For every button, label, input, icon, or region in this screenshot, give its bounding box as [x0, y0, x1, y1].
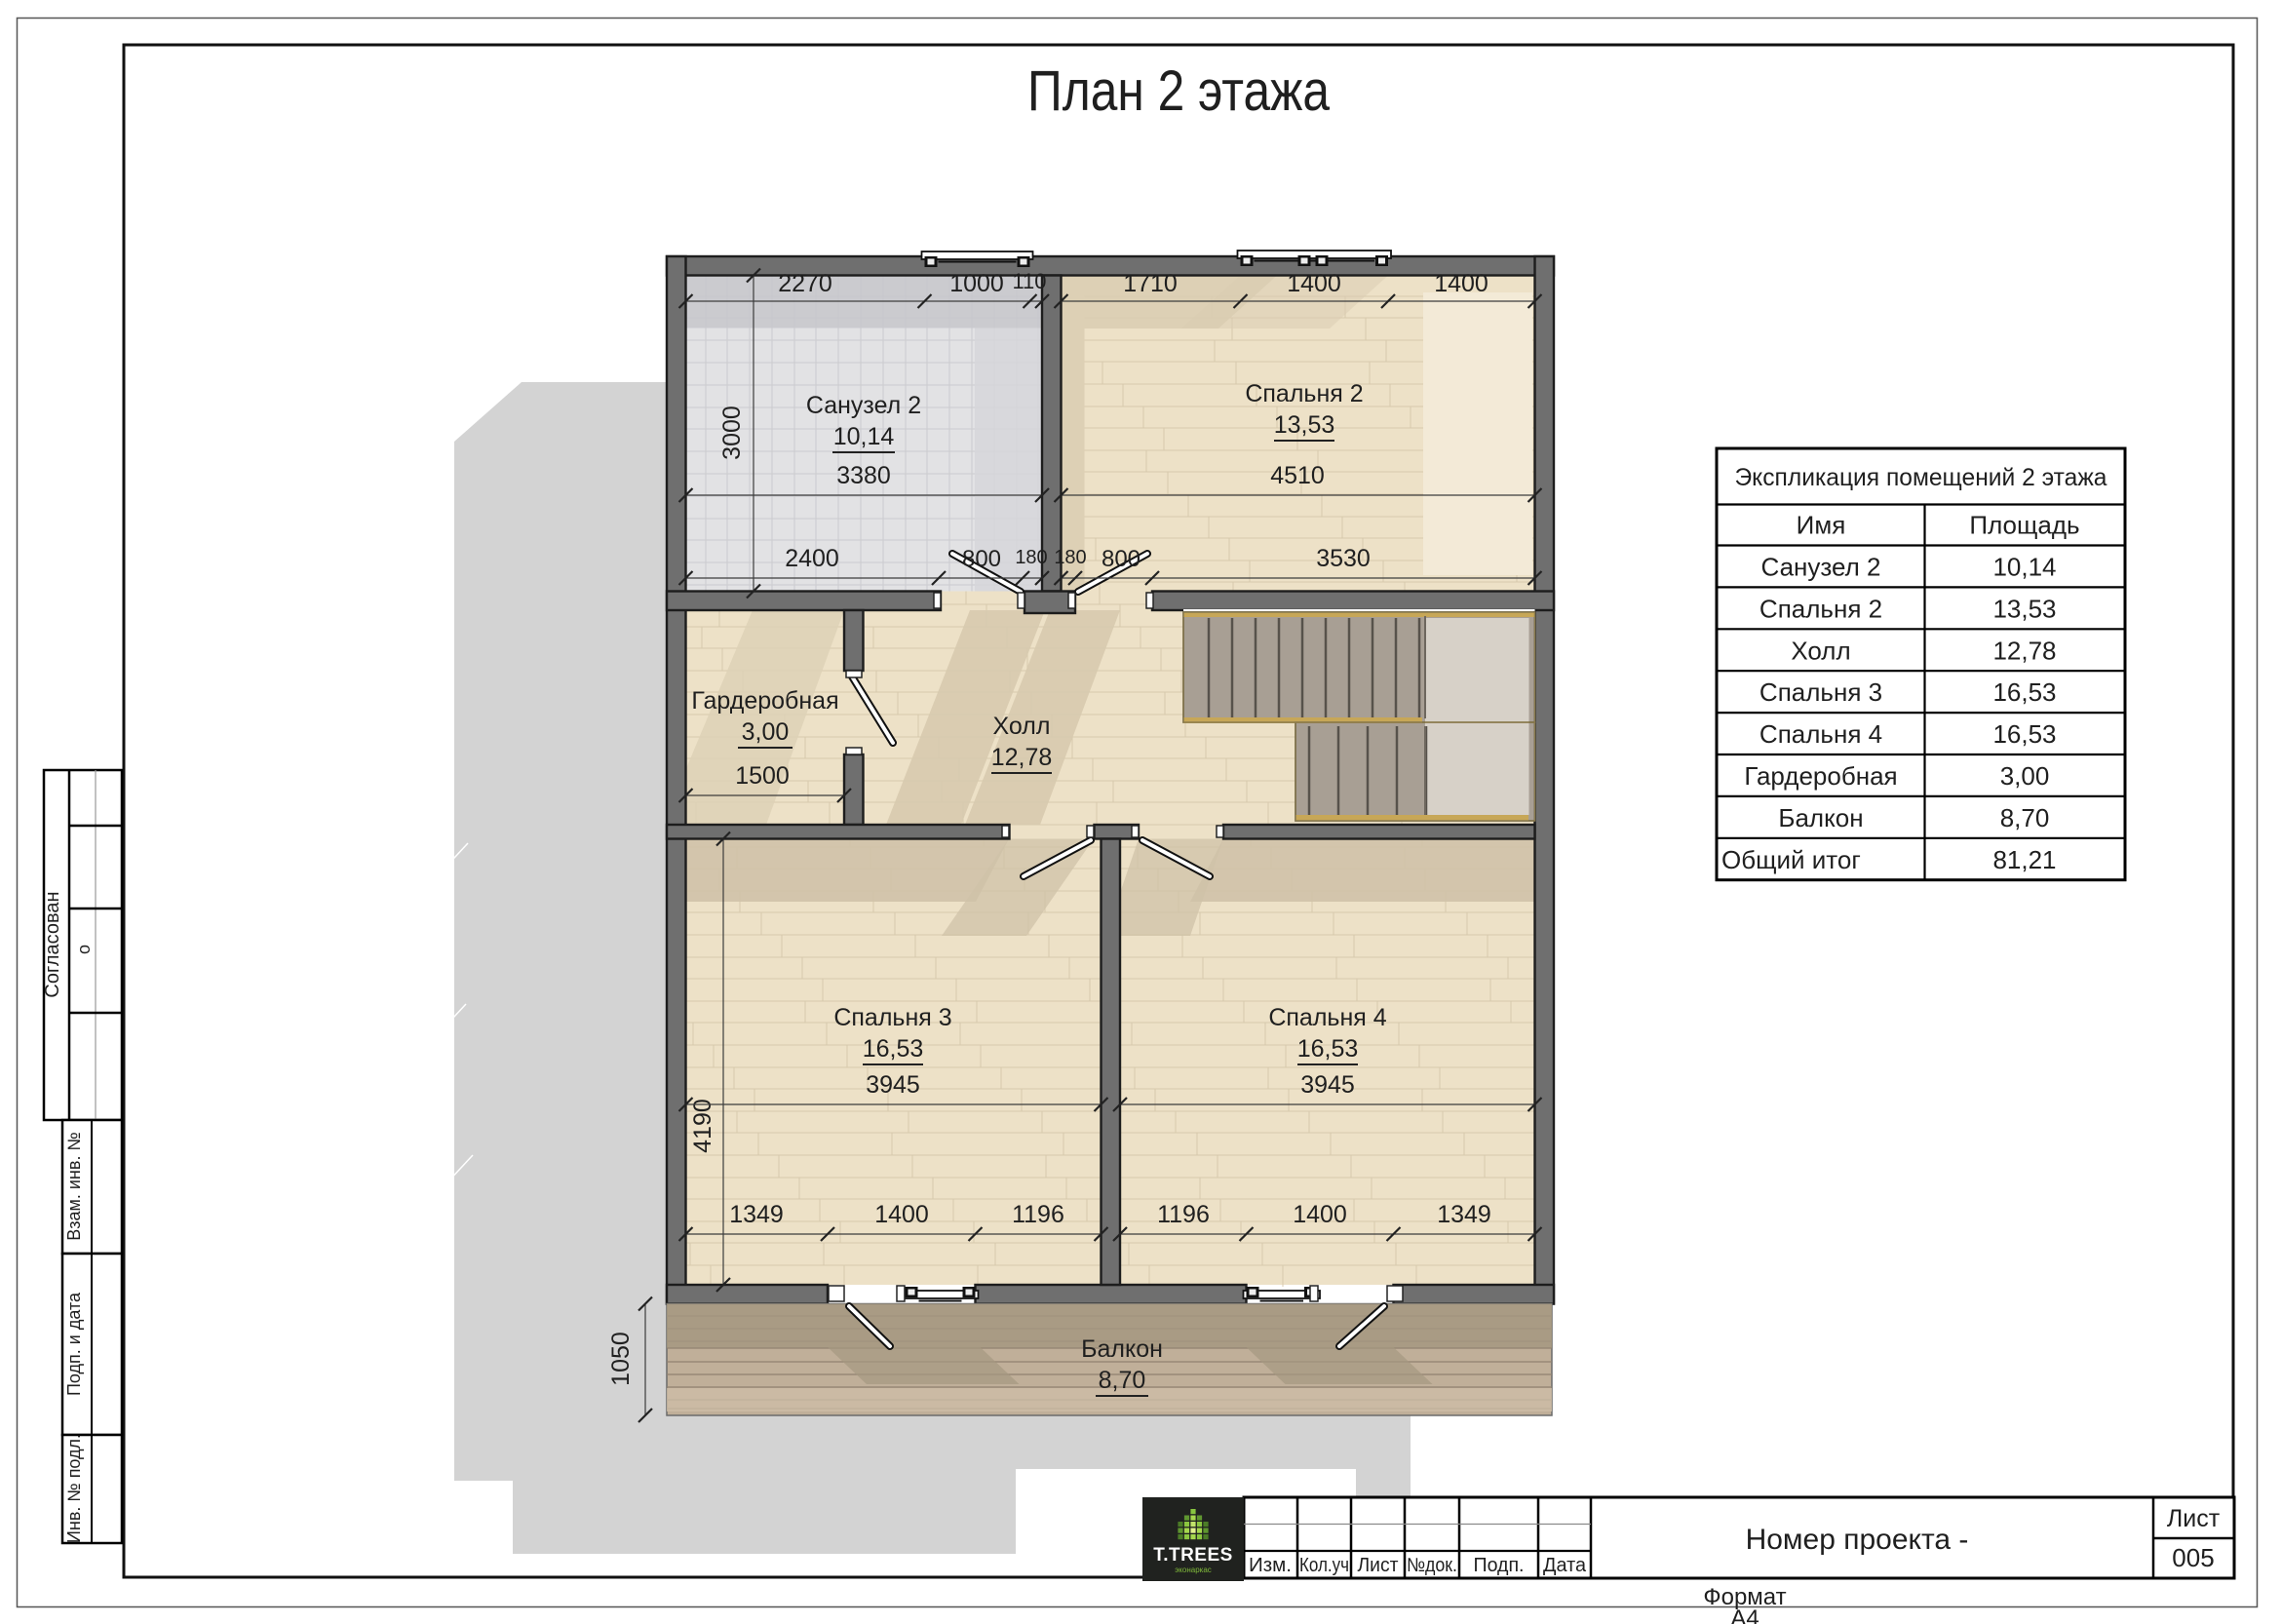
svg-text:Холл: Холл — [1791, 636, 1850, 665]
svg-text:3,00: 3,00 — [2000, 761, 2050, 791]
svg-text:Взам. инв. №: Взам. инв. № — [64, 1132, 84, 1241]
svg-text:800: 800 — [1102, 546, 1140, 572]
svg-text:Санузел 2: Санузел 2 — [806, 392, 921, 419]
svg-text:Санузел 2: Санузел 2 — [1761, 553, 1881, 582]
svg-text:110: 110 — [1012, 269, 1046, 293]
svg-text:Кол.уч: Кол.уч — [1299, 1555, 1349, 1576]
svg-text:180: 180 — [1015, 547, 1047, 568]
svg-text:005: 005 — [2172, 1543, 2214, 1572]
svg-text:Гардеробная: Гардеробная — [1744, 761, 1897, 791]
svg-text:Лист: Лист — [1358, 1555, 1399, 1576]
svg-text:1500: 1500 — [735, 762, 790, 790]
svg-text:1400: 1400 — [1434, 270, 1488, 297]
svg-text:Площадь: Площадь — [1969, 511, 2079, 540]
svg-text:16,53: 16,53 — [1297, 1035, 1359, 1063]
svg-text:1000: 1000 — [949, 270, 1004, 297]
svg-text:1349: 1349 — [729, 1201, 784, 1228]
svg-text:Балкон: Балкон — [1778, 803, 1863, 832]
svg-text:Балкон: Балкон — [1081, 1335, 1163, 1363]
svg-text:Общий итог: Общий итог — [1721, 845, 1861, 874]
svg-text:Подп. и дата: Подп. и дата — [64, 1292, 84, 1396]
svg-text:3000: 3000 — [718, 406, 746, 460]
svg-text:1196: 1196 — [1157, 1201, 1210, 1228]
svg-text:Инв. № подл.: Инв. № подл. — [64, 1434, 84, 1543]
svg-text:10,14: 10,14 — [1992, 553, 2056, 582]
svg-text:1196: 1196 — [1012, 1201, 1064, 1228]
svg-text:Спальня 4: Спальня 4 — [1268, 1004, 1386, 1031]
svg-text:1400: 1400 — [1287, 270, 1341, 297]
svg-text:1710: 1710 — [1123, 270, 1178, 297]
svg-text:16,53: 16,53 — [863, 1035, 924, 1063]
svg-text:4510: 4510 — [1270, 462, 1325, 489]
svg-text:Имя: Имя — [1797, 511, 1846, 540]
svg-text:Гардеробная: Гардеробная — [691, 687, 838, 715]
svg-text:13,53: 13,53 — [1992, 594, 2056, 623]
svg-text:эконаркас: эконаркас — [1175, 1566, 1212, 1574]
svg-text:Спальня 3: Спальня 3 — [833, 1004, 951, 1031]
svg-text:Согласован: Согласован — [42, 891, 63, 997]
svg-text:Спальня 3: Спальня 3 — [1759, 677, 1882, 707]
svg-text:2400: 2400 — [785, 545, 839, 572]
svg-text:Спальня 2: Спальня 2 — [1245, 380, 1363, 407]
svg-text:Экспликация помещений 2 этажа: Экспликация помещений 2 этажа — [1735, 464, 2107, 491]
svg-text:13,53: 13,53 — [1274, 411, 1335, 439]
svg-text:3945: 3945 — [1300, 1071, 1355, 1099]
svg-text:3530: 3530 — [1316, 545, 1371, 572]
svg-text:Изм.: Изм. — [1249, 1555, 1292, 1576]
svg-text:Спальня 4: Спальня 4 — [1759, 719, 1882, 749]
svg-text:2270: 2270 — [778, 270, 832, 297]
svg-text:81,21: 81,21 — [1992, 845, 2056, 874]
svg-text:4190: 4190 — [689, 1099, 716, 1153]
svg-text:3380: 3380 — [836, 462, 891, 489]
svg-text:12,78: 12,78 — [1992, 636, 2056, 665]
svg-text:План 2 этажа: План 2 этажа — [1027, 59, 1331, 123]
svg-text:10,14: 10,14 — [833, 423, 895, 450]
svg-text:Подп.: Подп. — [1474, 1555, 1525, 1576]
svg-text:180: 180 — [1054, 547, 1086, 568]
svg-text:12,78: 12,78 — [991, 744, 1053, 771]
svg-text:Дата: Дата — [1543, 1555, 1587, 1576]
svg-text:1400: 1400 — [1293, 1201, 1347, 1228]
svg-text:Холл: Холл — [993, 713, 1051, 740]
svg-text:8,70: 8,70 — [2000, 803, 2050, 832]
svg-text:Спальня 2: Спальня 2 — [1759, 594, 1882, 623]
svg-text:800: 800 — [962, 546, 1001, 572]
svg-text:1050: 1050 — [607, 1332, 635, 1386]
svg-text:1349: 1349 — [1437, 1201, 1491, 1228]
svg-text:№док.: №док. — [1407, 1555, 1457, 1576]
svg-text:8,70: 8,70 — [1099, 1367, 1146, 1394]
svg-text:3945: 3945 — [866, 1071, 920, 1099]
svg-text:1400: 1400 — [874, 1201, 929, 1228]
svg-text:16,53: 16,53 — [1992, 719, 2056, 749]
svg-text:3,00: 3,00 — [742, 718, 790, 746]
svg-text:Номер проекта -: Номер проекта - — [1746, 1524, 1969, 1556]
svg-text:Лист: Лист — [2167, 1505, 2221, 1532]
svg-text:16,53: 16,53 — [1992, 677, 2056, 707]
svg-text:А4: А4 — [1730, 1605, 1759, 1624]
svg-text:T.TREES: T.TREES — [1153, 1545, 1233, 1566]
svg-text:о: о — [74, 945, 94, 954]
